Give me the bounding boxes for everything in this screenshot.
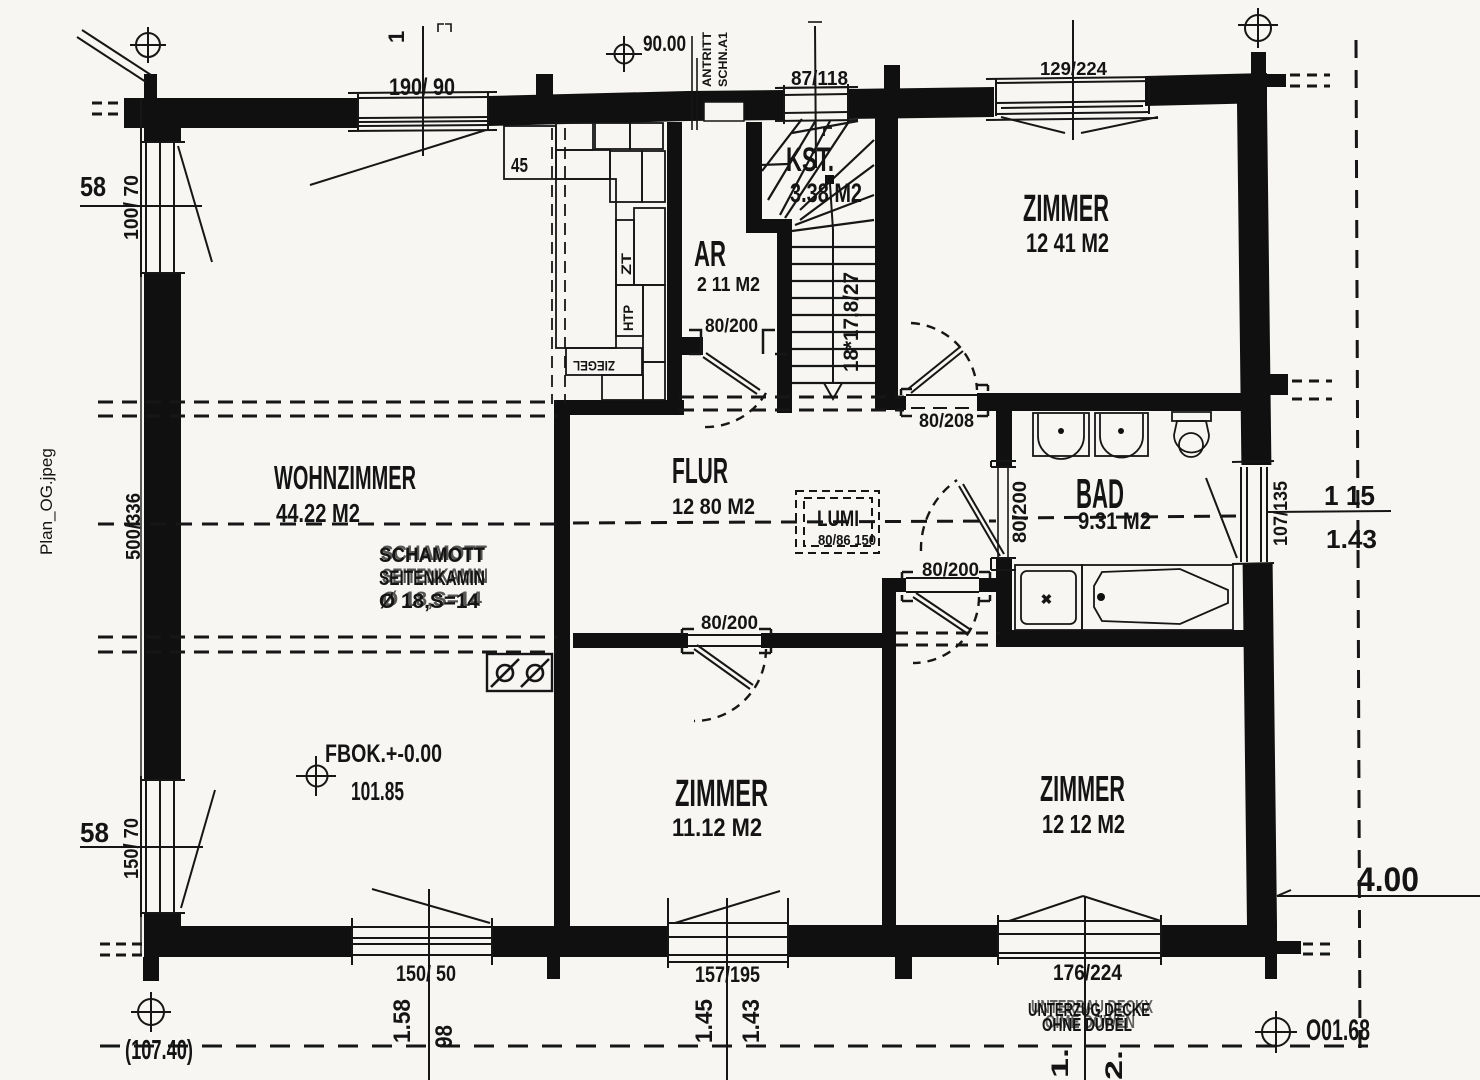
svg-text:Plan_OG.jpeg: Plan_OG.jpeg (37, 448, 56, 555)
svg-text:80/200: 80/200 (1010, 481, 1031, 543)
svg-text:157/195: 157/195 (695, 962, 760, 987)
svg-text:98: 98 (431, 1025, 458, 1048)
svg-text:12 80 M2: 12 80 M2 (672, 494, 755, 519)
svg-text:ZIMMER: ZIMMER (1040, 768, 1125, 809)
svg-text:80/200: 80/200 (922, 560, 979, 581)
svg-text:×: × (1042, 591, 1051, 608)
svg-text:176/224: 176/224 (1053, 960, 1123, 985)
svg-text:107/135: 107/135 (1271, 481, 1292, 546)
svg-text:(107.40): (107.40) (125, 1034, 193, 1065)
svg-text:Ø 18,S=14: Ø 18,S=14 (382, 588, 482, 611)
svg-text:ZIMMER: ZIMMER (675, 773, 768, 815)
svg-text:1.58: 1.58 (389, 999, 416, 1043)
svg-text:ZIEGEL: ZIEGEL (573, 358, 615, 374)
svg-text:9.31 M2: 9.31 M2 (1078, 508, 1151, 535)
svg-text:129/224: 129/224 (1040, 59, 1107, 79)
svg-text:1.43: 1.43 (738, 999, 765, 1043)
svg-text:1.45: 1.45 (691, 999, 718, 1043)
svg-text:2 11 M2: 2 11 M2 (697, 274, 760, 296)
svg-text:100/ 70: 100/ 70 (121, 175, 143, 240)
svg-text:HTP: HTP (620, 305, 636, 331)
svg-text:90.00: 90.00 (643, 31, 686, 56)
svg-text:ZIMMER: ZIMMER (1023, 188, 1109, 230)
svg-text:80/200: 80/200 (701, 613, 758, 634)
svg-text:150/ 70: 150/ 70 (121, 818, 143, 879)
svg-text:58: 58 (80, 817, 109, 848)
svg-text:FBOK.+-0.00: FBOK.+-0.00 (325, 740, 442, 768)
svg-text:OIME DOWEN: OIME DOWEN (1045, 1012, 1135, 1032)
svg-text:2.: 2. (1101, 1050, 1128, 1080)
svg-text:LUMI: LUMI (817, 506, 859, 531)
svg-text:FLUR: FLUR (672, 450, 728, 491)
svg-text:AR: AR (694, 233, 726, 274)
svg-text:O01.68: O01.68 (1306, 1014, 1370, 1047)
svg-text:80/208: 80/208 (919, 411, 974, 432)
svg-text:1 15: 1 15 (1324, 480, 1375, 511)
svg-text:KST.: KST. (786, 141, 834, 179)
svg-text:45: 45 (511, 155, 528, 177)
svg-text:11.12 M2: 11.12 M2 (672, 814, 762, 842)
svg-text:1.: 1. (1047, 1048, 1074, 1078)
svg-text:1.43: 1.43 (1326, 524, 1377, 554)
svg-text:SEITENKAMIN: SEITENKAMIN (382, 565, 488, 588)
svg-text:18*17,8/27: 18*17,8/27 (840, 272, 863, 372)
svg-text:58: 58 (80, 171, 106, 202)
svg-text:3.38 M2: 3.38 M2 (790, 178, 862, 208)
svg-text:12 12 M2: 12 12 M2 (1042, 809, 1125, 839)
svg-text:150/ 50: 150/ 50 (396, 961, 456, 986)
svg-text:101.85: 101.85 (351, 776, 404, 806)
svg-text:44.22 M2: 44.22 M2 (276, 498, 360, 528)
svg-text:SCHN.A1: SCHN.A1 (716, 32, 730, 87)
svg-text:WOHNZIMMER: WOHNZIMMER (274, 459, 416, 496)
svg-text:80/200: 80/200 (705, 316, 758, 337)
svg-text:12 41 M2: 12 41 M2 (1026, 228, 1109, 258)
svg-text:80/86 150: 80/86 150 (818, 532, 876, 549)
svg-text:500/336: 500/336 (123, 493, 145, 560)
svg-text:ANTRITT: ANTRITT (700, 31, 714, 87)
svg-text:ZT: ZT (618, 252, 634, 275)
svg-text:87/118: 87/118 (791, 68, 848, 90)
svg-text:SCHAMOTT: SCHAMOTT (381, 542, 487, 565)
svg-text:190/ 90: 190/ 90 (389, 74, 455, 101)
svg-text:1: 1 (384, 31, 409, 43)
svg-text:4.00: 4.00 (1357, 861, 1419, 899)
